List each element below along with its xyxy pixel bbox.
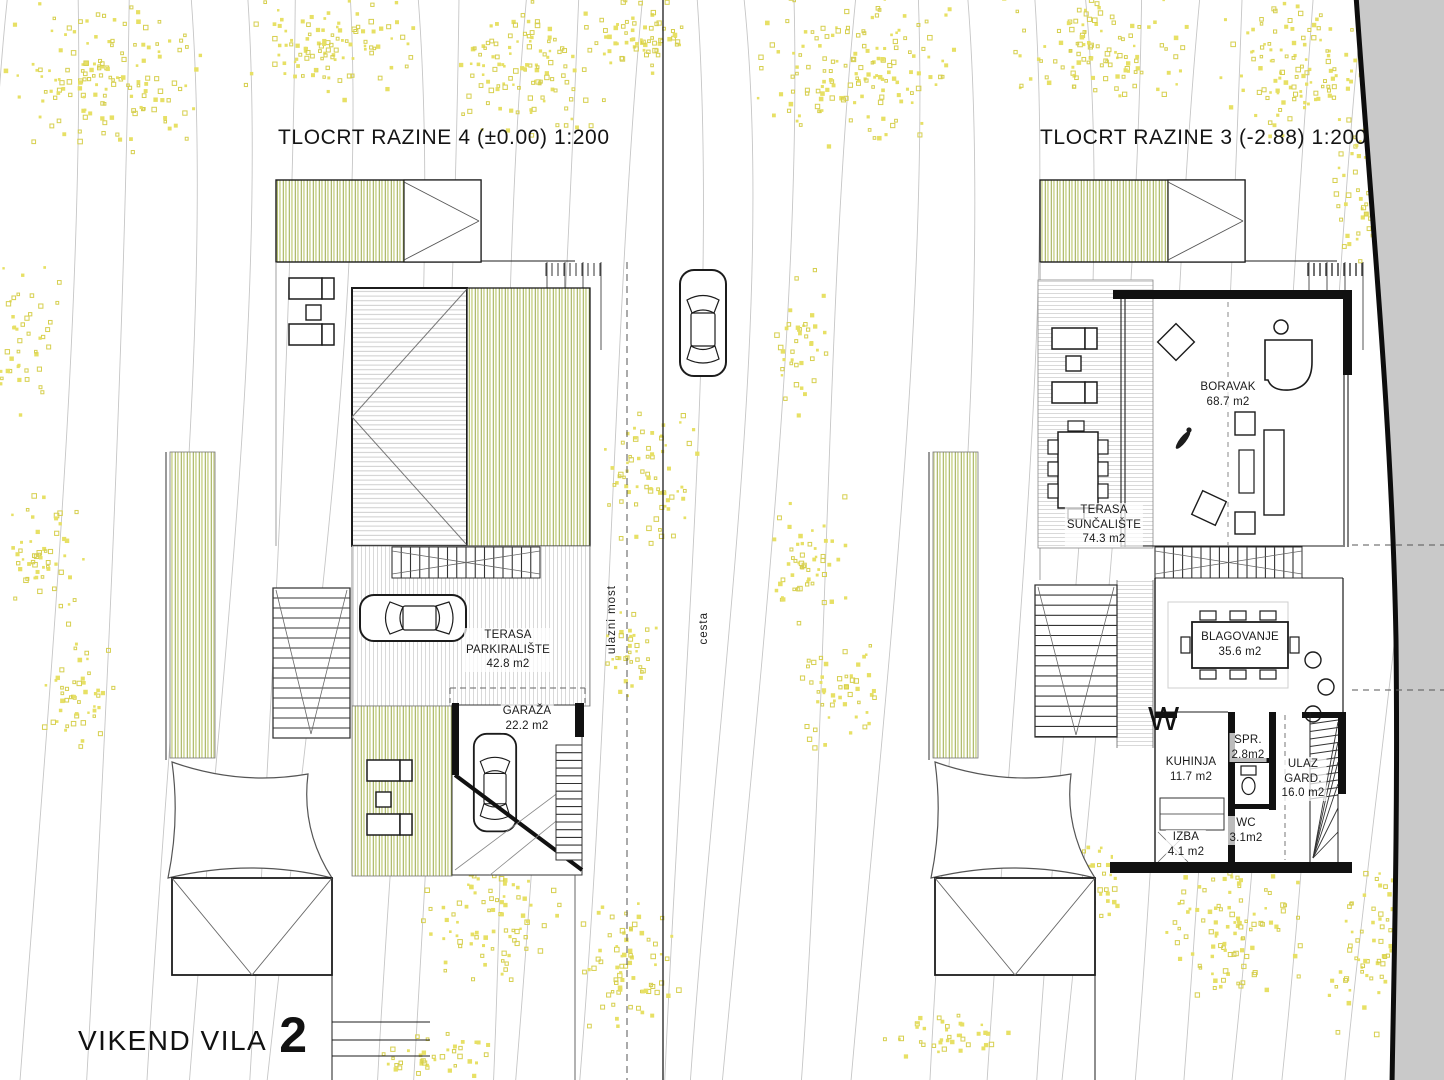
project-number: 2 [279, 1016, 307, 1055]
tree-cluster [581, 902, 681, 1028]
room-area: 68.7 m2 [1200, 395, 1255, 410]
road-label: cesta [698, 612, 710, 645]
shade-sail [931, 762, 1095, 878]
room-label-kuhinja: KUHINJA 11.7 m2 [1164, 755, 1219, 784]
room-name: TERASA SUNČALIŠTE [1067, 503, 1141, 532]
room-label-garaza: GARAŽA 22.2 m2 [501, 704, 554, 733]
room-label-blagovanje: BLAGOVANJE 35.6 m2 [1199, 630, 1281, 659]
plot-boundary [627, 0, 663, 1080]
tree-cluster [459, 1, 612, 137]
exterior-stairs [1035, 585, 1117, 737]
tree-cluster [757, 0, 956, 149]
room-area: 2.8m2 [1232, 748, 1265, 763]
room-label-boravak: BORAVAK 68.7 m2 [1198, 380, 1257, 409]
room-name: WC [1230, 816, 1263, 831]
tree-cluster [1002, 0, 1189, 97]
tree-cluster [244, 0, 415, 102]
tree-cluster [0, 0, 202, 154]
tree-cluster [1165, 857, 1302, 997]
tree-cluster [0, 266, 61, 417]
room-name: IZBA [1168, 830, 1204, 845]
room-area: 11.7 m2 [1166, 770, 1217, 785]
planting-strip [929, 452, 978, 760]
tree-cluster [11, 494, 84, 626]
room-label-spr: SPR. 2.8m2 [1230, 733, 1267, 762]
planting-strip [166, 452, 215, 760]
entry-bridge-label: ulazni most [606, 585, 618, 654]
room-name: BLAGOVANJE [1201, 630, 1279, 645]
room-label-wc: WC 3.1m2 [1228, 816, 1265, 845]
tree-cluster [772, 495, 847, 625]
site-plan-level-3 [929, 180, 1444, 1080]
entry-stairs [392, 547, 540, 578]
project-name: VIKEND VILA [78, 1027, 267, 1055]
exterior-stairs [273, 588, 350, 738]
roof-building [352, 288, 590, 546]
room-area: 42.8 m2 [466, 657, 550, 672]
tree-cluster [382, 1032, 490, 1078]
room-area: 4.1 m2 [1168, 845, 1204, 860]
tree-cluster [883, 1014, 1010, 1058]
right-plan-title: TLOCRT RAZINE 3 (-2.88) 1:200 [1040, 126, 1367, 150]
project-title: VIKEND VILA 2 [78, 1016, 307, 1055]
lower-deck [352, 706, 452, 876]
room-label-izba: IZBA 4.1 m2 [1166, 830, 1206, 859]
room-name: ULAZ GARD. [1282, 757, 1325, 786]
garage-stairs [556, 745, 582, 860]
room-area: 16.0 m2 [1282, 786, 1325, 801]
car-icon [680, 270, 726, 376]
car-icon [360, 595, 466, 641]
room-area: 22.2 m2 [503, 719, 552, 734]
room-area: 74.3 m2 [1067, 532, 1141, 547]
site-plan-sheet: TLOCRT RAZINE 4 (±0.00) 1:200 TLOCRT RAZ… [0, 0, 1444, 1080]
plan-drawing [0, 0, 1444, 1080]
left-plan-title: TLOCRT RAZINE 4 (±0.00) 1:200 [278, 126, 610, 150]
tree-cluster [42, 643, 114, 749]
room-name: BORAVAK [1200, 380, 1255, 395]
room-name: SPR. [1232, 733, 1265, 748]
room-label-terasa-parkiraliste: TERASA PARKIRALIŠTE 42.8 m2 [464, 628, 552, 672]
room-name: TERASA PARKIRALIŠTE [466, 628, 550, 657]
washer-mark: W [1148, 700, 1179, 738]
wc-fixture [1241, 766, 1256, 795]
room-label-terasa-suncaliste: TERASA SUNČALIŠTE 74.3 m2 [1065, 503, 1143, 547]
room-area: 3.1m2 [1230, 831, 1263, 846]
tree-cluster [604, 412, 699, 545]
road-area [1356, 0, 1444, 1080]
tree-cluster [800, 645, 876, 750]
room-name: KUHINJA [1166, 755, 1217, 770]
room-name: GARAŽA [503, 704, 552, 719]
shade-sail [168, 762, 332, 878]
room-label-ulaz-gard: ULAZ GARD. 16.0 m2 [1280, 757, 1327, 801]
room-area: 35.6 m2 [1201, 645, 1279, 660]
sun-loungers [289, 278, 334, 345]
